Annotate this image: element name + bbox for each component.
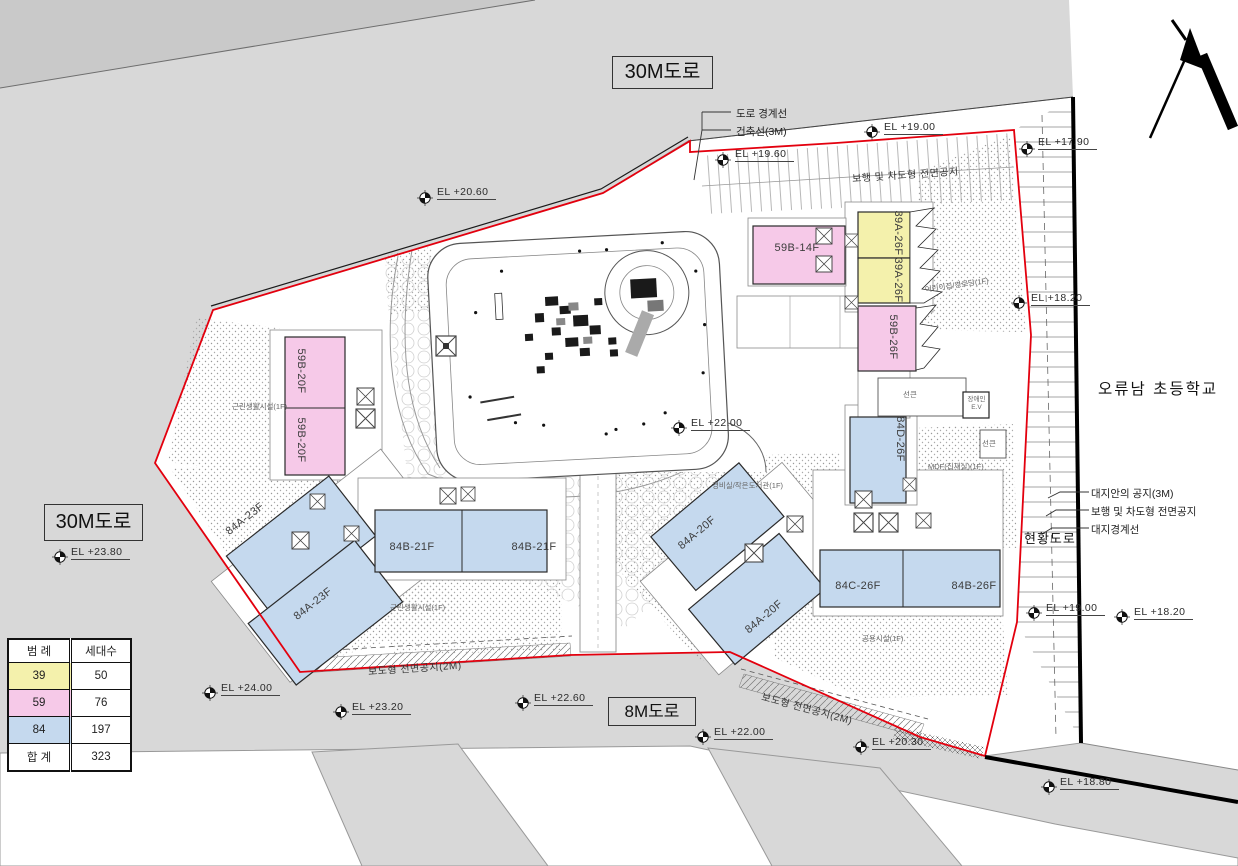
building-label-59B-26F: 59B-26F	[887, 307, 899, 367]
facility-label-retail-2: 근린생활시설(1F)	[390, 602, 445, 613]
legend-count-84: 197	[71, 717, 132, 744]
legend-type-59: 59	[8, 690, 71, 717]
building-label-84B-21F-1: 84B-21F	[378, 541, 446, 553]
facility-label-common: 공용시설(1F)	[862, 633, 903, 644]
legend-header-count: 세대수	[71, 639, 132, 663]
el-label-20-60: EL +20.60	[437, 186, 496, 200]
facility-label-mdf: MDF(집재실)(1F)	[928, 461, 984, 472]
road-label-top: 30M도로	[612, 56, 713, 89]
el-label-19-60: EL +19.60	[735, 148, 794, 162]
el-label-20-30: EL +20.30	[872, 736, 931, 750]
annotation-road-boundary: 도로 경계선	[736, 106, 787, 121]
legend-count-39: 50	[71, 663, 132, 690]
road-label-left: 30M도로	[44, 504, 143, 541]
facility-label-sunken-1: 선큰	[903, 389, 917, 400]
legend-type-84: 84	[8, 717, 71, 744]
building-label-59B-20F-2: 59B-20F	[295, 410, 307, 470]
el-label-24-00: EL +24.00	[221, 682, 280, 696]
building-label-59B-20F-1: 59B-20F	[295, 341, 307, 401]
building-label-84C-26F: 84C-26F	[822, 580, 894, 592]
el-label-23-20: EL +23.20	[352, 701, 411, 715]
legend-type-39: 39	[8, 663, 71, 690]
school-name: 오류남 초등학교	[1098, 377, 1218, 399]
facility-label-security-library: 경비실/작은도서관(1F)	[712, 480, 783, 491]
site-plan-drawing	[0, 0, 1238, 866]
sunken-court	[878, 378, 966, 416]
facility-label-retail-1: 근린생활시설(1F)	[232, 401, 287, 412]
building-84C-84B-26F	[820, 550, 1000, 607]
el-label-22-60: EL +22.60	[534, 692, 593, 706]
legend-total-count: 323	[71, 744, 132, 772]
site-plan: 30M도로 30M도로 8M도로 오류남 초등학교 도로 경계선 건축선(3M)…	[0, 0, 1238, 866]
annotation-building-line: 건축선(3M)	[736, 124, 787, 139]
el-label-22-00-bottom: EL +22.00	[714, 726, 773, 740]
el-label-19-00-top: EL +19.00	[884, 121, 943, 135]
el-label-18-80: EL +18.80	[1060, 776, 1119, 790]
legend-table: 범 례 세대수 39 50 59 76 84 197 합 계 323	[7, 638, 132, 772]
building-label-84B-26F: 84B-26F	[938, 580, 1010, 592]
building-label-39A-26F-2: 39A-26F	[892, 250, 904, 310]
building-label-59B-14F: 59B-14F	[757, 242, 837, 254]
building-label-84B-21F-2: 84B-21F	[500, 541, 568, 553]
el-label-17-90: EL +17.90	[1038, 136, 1097, 150]
el-label-22-00-center: EL +22.00	[691, 417, 750, 431]
legend-count-59: 76	[71, 690, 132, 717]
facility-label-sunken-2: 선큰	[982, 438, 996, 449]
annotation-site-boundary: 대지경계선	[1091, 522, 1139, 537]
building-59B-20F	[285, 337, 345, 475]
playground	[426, 230, 730, 483]
legend-header-type: 범 례	[8, 639, 71, 663]
annotation-existing-road: 현황도로	[1024, 528, 1076, 547]
building-label-84D-26F: 84D-26F	[894, 409, 906, 469]
el-label-19-00-right: EL +19.00	[1046, 602, 1105, 616]
annotation-ped-vehicle-space: 보행 및 차도형 전면공지	[1091, 504, 1196, 519]
legend-total-label: 합 계	[8, 744, 71, 772]
el-label-23-80: EL +23.80	[71, 546, 130, 560]
el-label-18-20-upper: EL +18.20	[1031, 292, 1090, 306]
facility-label-elevator: 장애인 E.V	[964, 396, 989, 412]
el-label-18-20-right: EL +18.20	[1134, 606, 1193, 620]
annotation-site-open-space: 대지안의 공지(3M)	[1091, 486, 1173, 501]
road-label-bottom: 8M도로	[608, 697, 696, 726]
